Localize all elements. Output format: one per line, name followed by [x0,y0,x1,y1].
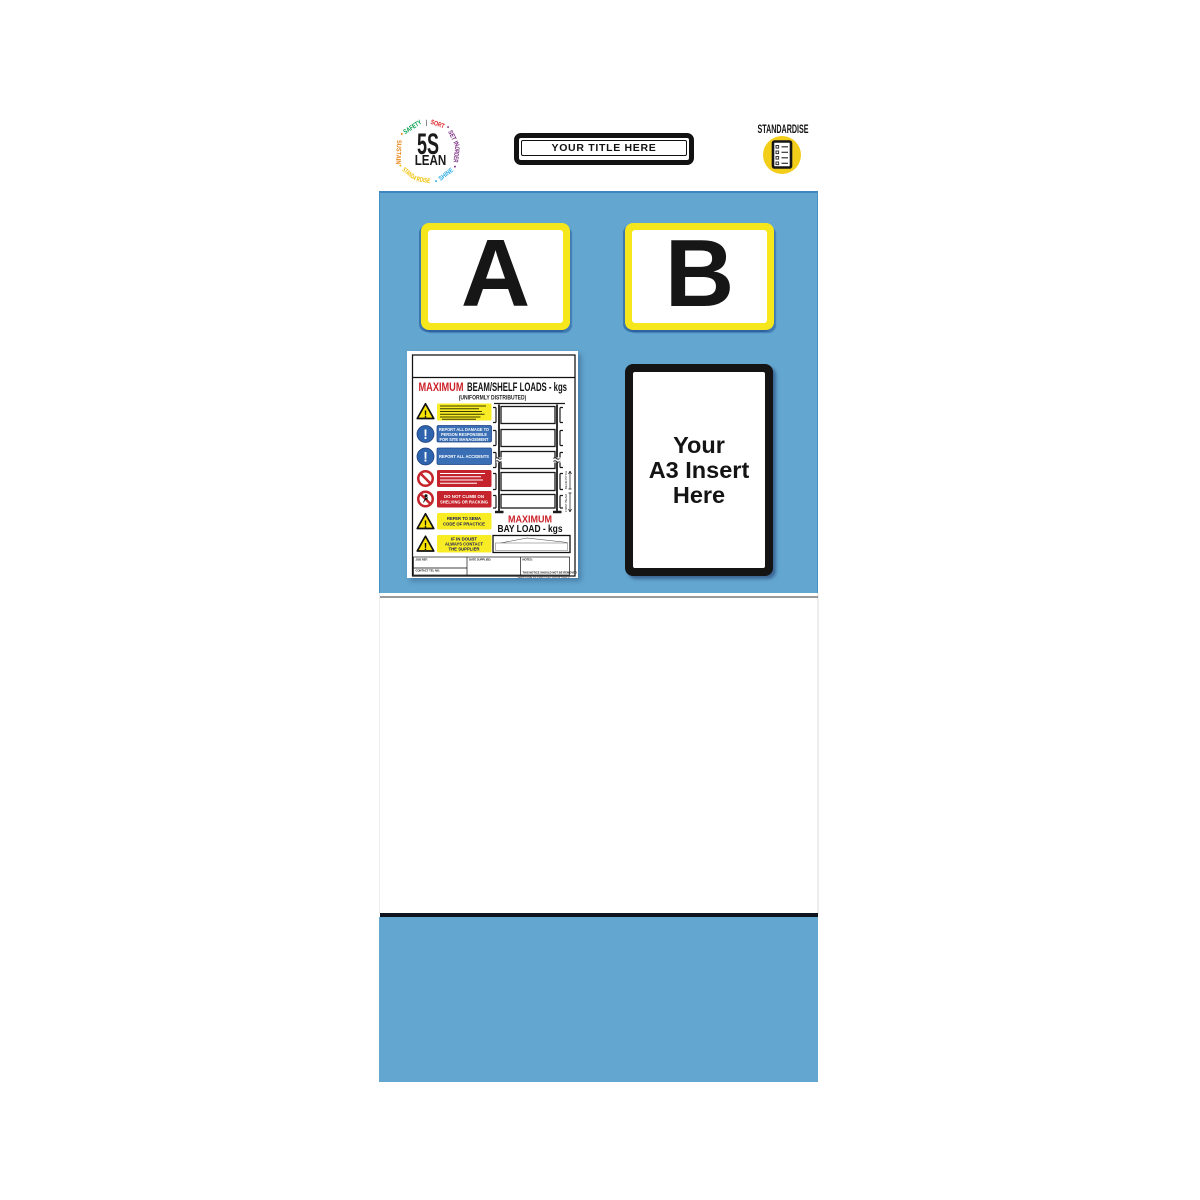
svg-text:BEAM/SHELF LOADS - kgs: BEAM/SHELF LOADS - kgs [467,380,567,394]
svg-text:STANDA: STANDA [401,166,418,182]
svg-text:REFER TO SEMA: REFER TO SEMA [447,516,481,521]
svg-text:JOB REF:: JOB REF: [416,558,429,562]
svg-text:ALWAYS CONTACT: ALWAYS CONTACT [445,541,483,546]
svg-text:NOTES:: NOTES: [523,558,533,562]
svg-text:ORDER: ORDER [451,146,460,163]
svg-text:BAY LOAD - kgs: BAY LOAD - kgs [498,524,563,535]
svg-text:REPORT ALL DAMAGE TO: REPORT ALL DAMAGE TO [439,427,490,432]
svg-text:SUSTAIN: SUSTAIN [394,140,402,165]
svg-text:LEAN: LEAN [415,151,447,168]
svg-text:PERSON RESPONSIBLE: PERSON RESPONSIBLE [441,432,487,437]
svg-text:CONTACT TEL NO:: CONTACT TEL NO: [416,569,440,573]
svg-text:MAXIMUM: MAXIMUM [419,380,464,394]
svg-text:FOR SITE MANAGEMENT: FOR SITE MANAGEMENT [440,437,489,442]
svg-text:DATE SUPPLIED:: DATE SUPPLIED: [469,558,491,562]
svg-text:SHELVING OR RACKING: SHELVING OR RACKING [440,499,489,504]
svg-text:CODE OF PRACTICE: CODE OF PRACTICE [443,521,485,526]
svg-text:|: | [425,119,427,126]
svg-text:(UNIFORMLY DISTRIBUTED): (UNIFORMLY DISTRIBUTED) [459,396,527,402]
svg-text:IF IN DOUBT: IF IN DOUBT [451,536,477,541]
svg-text:SHINE: SHINE [438,167,456,183]
svg-text:THE SUPPLIER: THE SUPPLIER [449,546,481,551]
svg-text:REPORT ALL ACCIDENTS: REPORT ALL ACCIDENTS [439,454,489,459]
svg-text:DO NOT CLIMB ON: DO NOT CLIMB ON [444,494,484,499]
svg-text:THIS NOTICE SHOULD NOT BE REMO: THIS NOTICE SHOULD NOT BE REMOVED [523,571,577,575]
svg-text:SET IN: SET IN [446,129,460,148]
svg-text:•: • [433,177,438,185]
svg-text:BEAM PITCH: BEAM PITCH [564,471,568,489]
svg-text:RDISE: RDISE [416,176,431,185]
svg-text:FIRST BEAM: FIRST BEAM [564,494,568,512]
svg-text:SEMA CODE OF PRACTICE • JAN 96: SEMA CODE OF PRACTICE • JAN 96 • REF 2 [517,576,570,578]
